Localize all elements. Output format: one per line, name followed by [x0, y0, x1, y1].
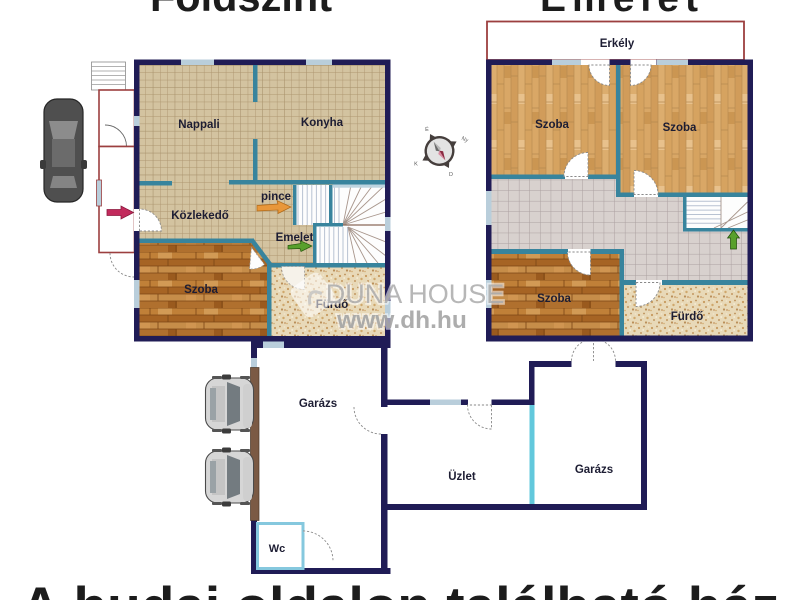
svg-text:Garázs: Garázs	[299, 398, 337, 410]
svg-text:Konyha: Konyha	[301, 117, 344, 129]
svg-text:Szoba: Szoba	[184, 284, 218, 296]
svg-text:Közlekedő: Közlekedő	[171, 210, 229, 222]
svg-text:É: É	[425, 126, 429, 133]
svg-text:DUNA HOUSE: DUNA HOUSE	[326, 279, 505, 309]
svg-text:Földszint: Földszint	[150, 0, 332, 20]
svg-text:Szoba: Szoba	[537, 293, 571, 305]
svg-text:Wc: Wc	[269, 543, 286, 555]
svg-text:Emelet: Emelet	[540, 0, 704, 20]
svg-text:Üzlet: Üzlet	[448, 470, 476, 483]
svg-text:K: K	[414, 162, 418, 168]
svg-text:Szoba: Szoba	[663, 122, 697, 134]
svg-text:D: D	[449, 172, 453, 178]
svg-text:Garázs: Garázs	[575, 464, 613, 476]
svg-text:Fürdő: Fürdő	[671, 311, 704, 323]
svg-text:Szoba: Szoba	[535, 119, 569, 131]
svg-text:pince: pince	[261, 191, 291, 203]
svg-text:Emelet: Emelet	[276, 232, 314, 244]
svg-text:A budai oldalon található ház: A budai oldalon található ház	[21, 575, 780, 600]
svg-text:www.dh.hu: www.dh.hu	[336, 307, 467, 334]
svg-text:Erkély: Erkély	[600, 38, 635, 50]
svg-text:Nappali: Nappali	[178, 119, 220, 131]
